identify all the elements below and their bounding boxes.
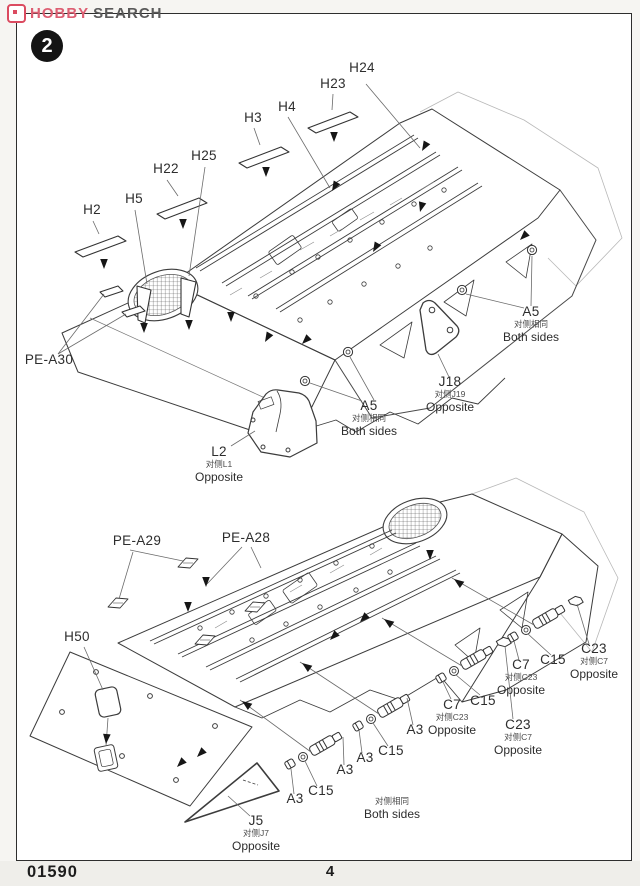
part-a5-cone <box>527 245 536 254</box>
engine-grille <box>377 490 453 552</box>
part-pe-plate <box>245 602 265 612</box>
part-a5-cone <box>300 376 309 385</box>
assembly-arrows <box>102 550 464 770</box>
assembly-line-art <box>0 0 640 886</box>
part-j18-panel <box>420 301 459 355</box>
bottom-assembly-drawing <box>30 478 618 822</box>
part-h50 <box>94 686 122 772</box>
part-pe-plate <box>178 558 198 568</box>
part-j5-panel <box>185 763 279 822</box>
part-a5-cone <box>457 285 466 294</box>
top-assembly-drawing <box>58 84 622 457</box>
glacis-panel <box>30 652 252 806</box>
part-l2-panel <box>248 390 317 457</box>
kit-number: 01590 <box>27 863 78 882</box>
part-strips <box>75 112 358 323</box>
shock-absorber-parts <box>284 594 583 769</box>
part-pe-plate <box>108 598 128 608</box>
page-number: 4 <box>326 863 334 880</box>
part-a5-cone <box>343 347 352 356</box>
